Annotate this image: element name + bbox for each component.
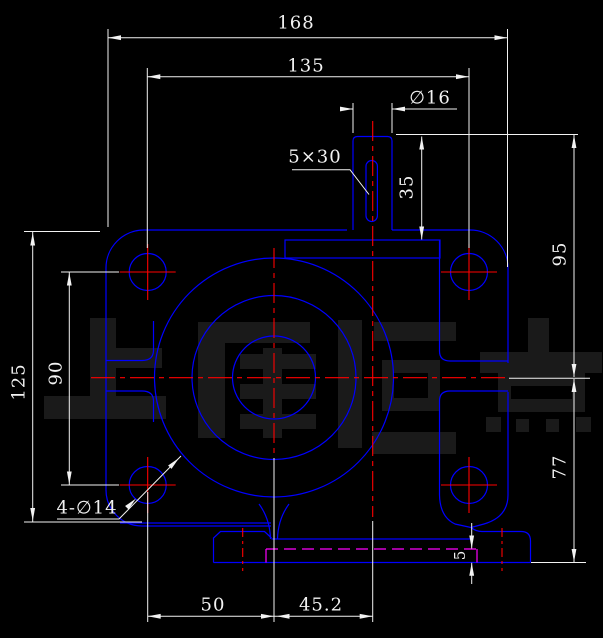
part-geometry xyxy=(106,137,531,563)
dim-corner-holes-label: 4-∅14 xyxy=(56,498,117,519)
dim-boss-diameter-label: ∅16 xyxy=(409,88,451,109)
dim-tab-height-label: 35 xyxy=(397,175,418,200)
dim-base-thickness-label: 5 xyxy=(451,550,469,561)
dim-hole-span-h-label: 135 xyxy=(287,56,324,77)
right-foot xyxy=(471,528,531,563)
dim-hole-span-v-label: 90 xyxy=(46,361,67,386)
slot-5x30 xyxy=(366,161,377,222)
dim-overall-width-label: 168 xyxy=(277,13,314,34)
dim-slot-label: 5×30 xyxy=(288,147,341,168)
hidden-lines xyxy=(266,549,477,563)
dim-hole-to-center-label: 50 xyxy=(201,595,226,616)
watermark xyxy=(44,318,602,454)
drawing-linework xyxy=(0,0,603,638)
dim-center-to-slot-label: 45.2 xyxy=(299,595,343,616)
cad-canvas[interactable]: 168 135 ∅16 5×30 35 95 77 125 90 50 45.2… xyxy=(0,0,603,638)
top-pad xyxy=(285,240,440,258)
dim-overall-height-label: 125 xyxy=(9,363,30,400)
dim-above-axis-label: 95 xyxy=(550,242,571,267)
dim-below-axis-label: 77 xyxy=(550,455,571,480)
